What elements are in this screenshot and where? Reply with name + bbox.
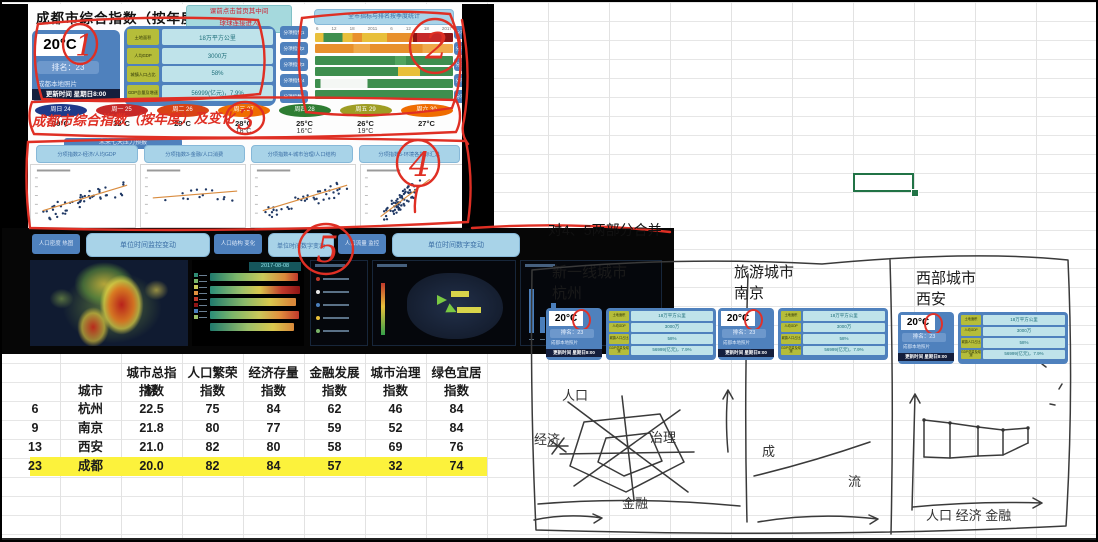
- forecast-day: 周五 29 26°C 19°C: [335, 104, 396, 135]
- pasted-image-dashboard-top[interactable]: 成都市综合指数（按年度排名） 课前点击首页其中间 球球连接进入 20°C 排名：…: [2, 4, 494, 228]
- scatter-cards: [30, 164, 462, 228]
- axis-tick: 2011: [368, 26, 378, 31]
- mini-stat-row: 城镇人口占比58%: [609, 334, 713, 344]
- date-chip: 2017-08-08: [249, 262, 301, 271]
- population-heatmap: [30, 260, 188, 346]
- axis-tick: 12: [406, 26, 411, 31]
- mini-stat-row: 城镇人口占比58%: [781, 334, 885, 344]
- mini-stat-row: 城镇人口占比58%: [961, 338, 1065, 348]
- stat-row: GDP总量及增速 56999(亿元)，7.9%: [127, 85, 273, 101]
- forecast-day: 周三 27 28°C 18°C: [213, 104, 274, 135]
- side-index-button: 分项指数2: [280, 42, 308, 55]
- table-cell[interactable]: 84: [426, 400, 487, 419]
- bottom-border: [2, 538, 1098, 542]
- horizon-strip: [315, 33, 453, 42]
- table-cell[interactable]: 西安: [60, 438, 121, 457]
- scatter-section-button: 分项指数5-环境各指标汇总: [359, 145, 461, 163]
- table-cell[interactable]: 57: [304, 457, 365, 476]
- sketch-section-title-南京: 旅游城市南京: [734, 262, 794, 304]
- mini-stat-row: GDP总量及增速56999(亿元)，7.9%: [961, 350, 1065, 360]
- note-line1: 课前点击首页其中间: [210, 8, 269, 15]
- panel-title-bar: [315, 264, 345, 267]
- table-cell[interactable]: 指数: [426, 382, 487, 400]
- photo-caption: 成都本地照片: [38, 78, 77, 88]
- scatter-section-button: 分项指数2-经济/人均GDP: [36, 145, 138, 163]
- bar: [210, 323, 294, 331]
- selected-cell[interactable]: [853, 173, 914, 192]
- city-stats-panel: 土地面积 18万平方公里 人均GDP 3000万 城镇人口占比 58% GDP总…: [124, 26, 276, 106]
- table-cell[interactable]: 23: [10, 457, 60, 476]
- scatter-chart-3: [250, 164, 356, 228]
- panel-title-bar: [525, 264, 555, 267]
- table-cell[interactable]: 指数: [365, 382, 426, 400]
- table-cell[interactable]: 经济存量: [243, 364, 304, 382]
- stacked-bar-card: 2017-08-08: [192, 260, 304, 346]
- day-chip: 周四 28: [279, 104, 331, 117]
- mini-stat-row: 土地面积18万平方公里: [961, 315, 1065, 325]
- red-circle-annotation: [744, 309, 763, 331]
- day-chip: 周一 25: [96, 104, 148, 117]
- bar: [210, 298, 296, 306]
- table-cell[interactable]: 84: [243, 400, 304, 419]
- side-index-button: 分项指数4: [454, 74, 462, 87]
- horizontal-bars: [210, 273, 302, 336]
- mini-stats-panel: 土地面积18万平方公里人均GDP3000万城镇人口占比58%GDP总量及增速56…: [606, 308, 716, 360]
- stat-value: 3000万: [162, 48, 273, 64]
- table-cell[interactable]: 20.0: [121, 457, 182, 476]
- spreadsheet-canvas: 成都市综合指数（按年度排名） 课前点击首页其中间 球球连接进入 20°C 排名：…: [0, 0, 1098, 542]
- table-cell[interactable]: 84: [243, 457, 304, 476]
- scatter-chart-2: [140, 164, 246, 228]
- side-button-column-left: 分项指数1分项指数2分项指数3分项指数4分项指数5: [280, 26, 308, 106]
- horizon-axis-ticks: 612182011612182017: [316, 26, 452, 31]
- mini-update-time: 更新时间 星期日8:00: [546, 349, 602, 357]
- table-cell[interactable]: 59: [304, 419, 365, 438]
- side-index-button: 分项指数1: [280, 26, 308, 39]
- legend-item: [316, 316, 349, 320]
- map-label: [451, 291, 469, 297]
- horizon-strip: [315, 90, 453, 99]
- legend-item: [316, 290, 349, 294]
- stat-row: 人均GDP 3000万: [127, 48, 273, 64]
- horizon-strip: [315, 56, 453, 65]
- merge-note-text: 对4、5两部分合并: [548, 220, 662, 240]
- side-button-column-right: 分项指数1分项指数2分项指数3分项指数4分项指数5: [454, 26, 462, 106]
- horizon-chart-title: 全市指标与排名按季度统计: [314, 9, 454, 25]
- table-cell[interactable]: 指数: [182, 382, 243, 400]
- table-cell[interactable]: 金融发展: [304, 364, 365, 382]
- gradient-scale: [381, 283, 385, 335]
- side-index-button: 分项指数4: [280, 74, 308, 87]
- horizon-strip: [315, 44, 453, 53]
- high-temp: 25°C: [274, 119, 335, 128]
- mini-update-time: 更新时间 星期日8:00: [898, 353, 954, 361]
- mini-weather-card: 20°C 排名：23 成都本地照片 更新时间 星期日8:00: [718, 308, 774, 360]
- table-cell[interactable]: 人口繁荣: [182, 364, 243, 382]
- table-cell[interactable]: 62: [304, 400, 365, 419]
- table-cell[interactable]: 80: [243, 438, 304, 457]
- legend-item: [316, 329, 349, 333]
- bar-legend: [194, 273, 208, 321]
- high-temp: 27°C: [396, 119, 457, 128]
- low-temp: 19°C: [335, 128, 396, 135]
- table-cell[interactable]: 75: [182, 400, 243, 419]
- day-chip: 周二 26: [157, 104, 209, 117]
- chip-population-structure: 人口结构 变化: [214, 234, 262, 254]
- horizon-strips: [315, 33, 453, 101]
- chip-population-density: 人口密度 热图: [32, 234, 80, 254]
- table-cell[interactable]: 南京: [60, 419, 121, 438]
- table-cell[interactable]: 6: [10, 400, 60, 419]
- axis-tick: 2017: [442, 26, 452, 31]
- forecast-day: 周二 26 29°C: [152, 104, 213, 135]
- axis-tick: 6: [390, 26, 393, 31]
- side-index-button: 分项指数5: [454, 90, 462, 103]
- map-label: [457, 307, 481, 313]
- button-time-digital-2: 单位时间数字变动: [392, 233, 520, 257]
- dashboard-top: 成都市综合指数（按年度排名） 课前点击首页其中间 球球连接进入 20°C 排名：…: [28, 4, 462, 228]
- flow-map-panel: [372, 260, 516, 346]
- axis-tick: 18: [424, 26, 429, 31]
- mini-stat-row: GDP总量及增速56999(亿元)，7.9%: [781, 346, 885, 356]
- flow-arrow-icon: [437, 295, 447, 305]
- rank-badge: 排名：23: [37, 61, 99, 74]
- bar: [210, 273, 298, 281]
- table-cell[interactable]: 82: [182, 438, 243, 457]
- table-cell[interactable]: 80: [182, 419, 243, 438]
- forecast-day: 周四 28 25°C 16°C: [274, 104, 335, 135]
- horizon-strip: [315, 79, 453, 88]
- stat-value: 56999(亿元)，7.9%: [162, 85, 273, 101]
- mini-stat-row: GDP总量及增速56999(亿元)，7.9%: [609, 346, 713, 356]
- mini-stat-row: 土地面积18万平方公里: [781, 311, 885, 321]
- weather-card: 20°C 排名：23 成都本地照片 更新时间 星期日8:00: [32, 30, 120, 102]
- axis-tick: 6: [316, 26, 319, 31]
- stat-label: 城镇人口占比: [127, 66, 159, 82]
- table-cell[interactable]: 82: [182, 457, 243, 476]
- stat-label: 人均GDP: [127, 48, 159, 64]
- mini-stat-row: 人均GDP3000万: [961, 327, 1065, 337]
- forecast-day: 周六 30 27°C: [396, 104, 457, 135]
- day-chip: 周五 29: [340, 104, 392, 117]
- mini-photo-caption: 成都本地照片: [903, 344, 930, 350]
- side-index-button: 分项指数1: [454, 26, 462, 39]
- side-index-button: 分项指数2: [454, 42, 462, 55]
- table-cell[interactable]: 指数: [121, 382, 182, 400]
- legend-item: [316, 277, 349, 281]
- table-cell[interactable]: 城市治理: [365, 364, 426, 382]
- table-cell[interactable]: 13: [10, 438, 60, 457]
- mini-update-time: 更新时间 星期日8:00: [718, 349, 774, 357]
- table-cell[interactable]: 46: [365, 400, 426, 419]
- scatter-section-button: 分项指数3-金融/人口消费: [144, 145, 246, 163]
- table-cell[interactable]: 9: [10, 419, 60, 438]
- stat-value: 58%: [162, 66, 273, 82]
- table-cell[interactable]: 58: [304, 438, 365, 457]
- red-circle-annotation: [924, 313, 943, 335]
- chip-population-flow: 人口流量 监控: [338, 234, 386, 254]
- table-cell[interactable]: 32: [365, 457, 426, 476]
- button-time-monitor: 单位时间监控变动: [86, 233, 210, 257]
- table-cell[interactable]: 指数: [304, 382, 365, 400]
- fill-handle[interactable]: [911, 189, 919, 197]
- table-cell[interactable]: 指数: [243, 382, 304, 400]
- scatter-section-buttons: 分项指数2-经济/人均GDP分项指数3-金融/人口消费分项指数4-城市治理/人口…: [36, 145, 460, 163]
- mini-stats-panel: 土地面积18万平方公里人均GDP3000万城镇人口占比58%GDP总量及增速56…: [778, 308, 888, 360]
- mini-weather-card: 20°C 排名：23 成都本地照片 更新时间 星期日8:00: [546, 308, 602, 360]
- high-temp: 28°C: [213, 119, 274, 128]
- table-cell[interactable]: 21.0: [121, 438, 182, 457]
- side-index-button: 分项指数3: [454, 58, 462, 71]
- table-cell[interactable]: 84: [426, 419, 487, 438]
- red-circle-annotation: [572, 309, 591, 331]
- table-cell[interactable]: 成都: [60, 457, 121, 476]
- mini-stats-panel: 土地面积18万平方公里人均GDP3000万城镇人口占比58%GDP总量及增速56…: [958, 312, 1068, 364]
- table-cell[interactable]: 22.5: [121, 400, 182, 419]
- panel-title-bar: [377, 264, 407, 267]
- day-chip: 周三 27: [218, 104, 270, 117]
- stat-label: GDP总量及增速: [127, 85, 159, 101]
- legend-item: [316, 303, 349, 307]
- table-cell[interactable]: 杭州: [60, 400, 121, 419]
- forecast-day: 周日 24 30°C: [30, 104, 91, 135]
- table-cell[interactable]: 21.8: [121, 419, 182, 438]
- update-time: 更新时间 星期日8:00: [32, 89, 120, 100]
- horizon-strip: [315, 67, 453, 76]
- mini-rank: 排名：23: [722, 329, 766, 338]
- table-cell[interactable]: 76: [426, 438, 487, 457]
- mini-weather-card: 20°C 排名：23 成都本地照片 更新时间 星期日8:00: [898, 312, 954, 364]
- table-cell[interactable]: 绿色宜居: [426, 364, 487, 382]
- day-chip: 周日 24: [35, 104, 87, 117]
- temperature-value: 20°C: [36, 34, 84, 56]
- table-cell[interactable]: 74: [426, 457, 487, 476]
- table-cell[interactable]: 77: [243, 419, 304, 438]
- high-temp: 30°C: [30, 119, 91, 128]
- stat-row: 城镇人口占比 58%: [127, 66, 273, 82]
- side-index-button: 分项指数5: [280, 90, 308, 103]
- day-chip: 周六 30: [401, 104, 453, 117]
- sketch-section-title-西安: 西部城市西安: [916, 268, 976, 310]
- mini-dashboard: 20°C 排名：23 成都本地照片 更新时间 星期日8:00 土地面积18万平方…: [898, 312, 1068, 364]
- mini-rank: 排名：23: [550, 329, 594, 338]
- mini-stat-row: 人均GDP3000万: [609, 323, 713, 333]
- mini-dashboard: 20°C 排名：23 成都本地照片 更新时间 星期日8:00 土地面积18万平方…: [546, 308, 716, 360]
- scatter-chart-4: [360, 164, 462, 228]
- forecast-day: 周一 25 32°C: [91, 104, 152, 135]
- axis-tick: 12: [332, 26, 337, 31]
- mini-stat-row: 土地面积18万平方公里: [609, 311, 713, 321]
- mini-dashboard: 20°C 排名：23 成都本地照片 更新时间 星期日8:00 土地面积18万平方…: [718, 308, 888, 360]
- scatter-chart-1: [30, 164, 136, 228]
- bar: [210, 286, 300, 294]
- button-time-digital-1: 单位时间数字变动: [268, 233, 334, 257]
- high-temp: 29°C: [152, 119, 213, 128]
- stat-row: 土地面积 18万平方公里: [127, 29, 273, 45]
- stat-value: 18万平方公里: [162, 29, 273, 45]
- table-cell[interactable]: 城市: [60, 382, 121, 400]
- sketch-section-title-杭州: 新一线城市杭州: [552, 262, 627, 304]
- mini-stat-row: 人均GDP3000万: [781, 323, 885, 333]
- weekly-forecast: 周日 24 30°C 周一 25 32°C 周二 26 29°C 周三 27 2…: [30, 104, 460, 135]
- mini-photo-caption: 成都本地照片: [723, 340, 750, 346]
- scatter-section-button: 分项指数4-城市治理/人口结构: [251, 145, 353, 163]
- low-temp: 16°C: [274, 128, 335, 135]
- table-cell[interactable]: 69: [365, 438, 426, 457]
- legend-panel: [310, 260, 368, 346]
- side-index-button: 分项指数3: [280, 58, 308, 71]
- mini-photo-caption: 成都本地照片: [551, 340, 578, 346]
- bar: [210, 311, 299, 319]
- stat-label: 土地面积: [127, 29, 159, 45]
- high-temp: 32°C: [91, 119, 152, 128]
- table-cell[interactable]: 城市总指标: [121, 364, 182, 382]
- table-cell[interactable]: 52: [365, 419, 426, 438]
- axis-tick: 18: [350, 26, 355, 31]
- low-temp: 18°C: [213, 128, 274, 135]
- mini-rank: 排名：23: [902, 333, 946, 342]
- high-temp: 26°C: [335, 119, 396, 128]
